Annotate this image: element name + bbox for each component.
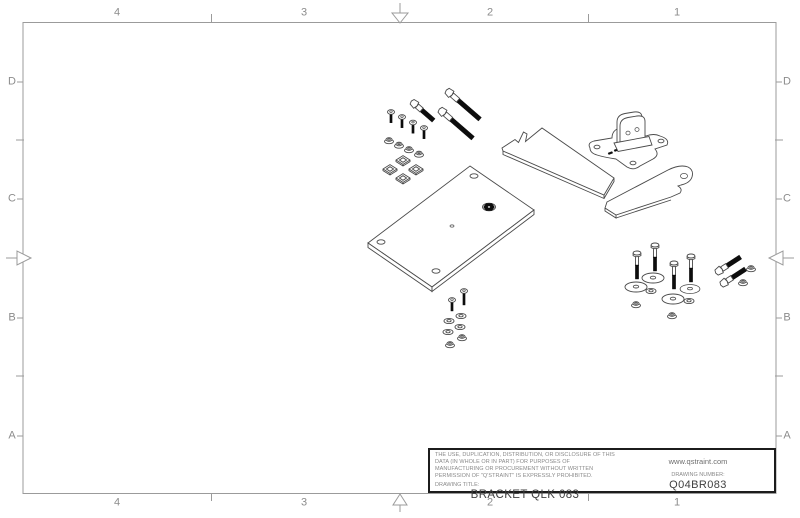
qlk-anchor-bracket <box>589 112 668 169</box>
zone-label-bottom-3: 3 <box>301 498 307 509</box>
drawing-number-label: DRAWING NUMBER: <box>671 472 724 478</box>
zone-label-left-C: C <box>8 194 16 205</box>
zone-label-right-B: B <box>783 313 790 324</box>
drawing-number: Q04BR083 <box>669 479 727 491</box>
drawing-title: BRACKET QLK 083 <box>435 489 615 501</box>
long-bracket-plate <box>502 128 614 199</box>
website-url: www.qstraint.com <box>669 457 728 466</box>
drawing-sheet-canvas <box>0 0 800 518</box>
zone-label-left-A: A <box>8 431 15 442</box>
zone-label-right-C: C <box>783 194 791 205</box>
zone-label-top-4: 4 <box>114 8 120 19</box>
zone-label-top-3: 3 <box>301 8 307 19</box>
legal-notice: THE USE, DUPLICATION, DISTRIBUTION, OR D… <box>435 452 615 480</box>
zone-label-top-1: 1 <box>674 8 680 19</box>
hardware-group-center <box>443 289 468 348</box>
zone-label-right-D: D <box>783 77 791 88</box>
main-plate <box>368 166 534 292</box>
zone-label-bottom-4: 4 <box>114 498 120 509</box>
zone-label-right-A: A <box>783 431 790 442</box>
zone-label-bottom-1: 1 <box>674 498 680 509</box>
drawing-title-label: DRAWING TITLE: <box>435 482 622 488</box>
title-block-left: THE USE, DUPLICATION, DISTRIBUTION, OR D… <box>430 450 622 491</box>
title-block-right: www.qstraint.com DRAWING NUMBER: Q04BR08… <box>622 450 774 491</box>
exploded-view <box>368 87 756 348</box>
title-block: THE USE, DUPLICATION, DISTRIBUTION, OR D… <box>428 448 776 493</box>
zone-label-top-2: 2 <box>487 8 493 19</box>
zone-label-left-B: B <box>8 313 15 324</box>
hook-bracket <box>605 166 693 218</box>
hardware-group-right <box>625 243 756 319</box>
zone-label-left-D: D <box>8 77 16 88</box>
